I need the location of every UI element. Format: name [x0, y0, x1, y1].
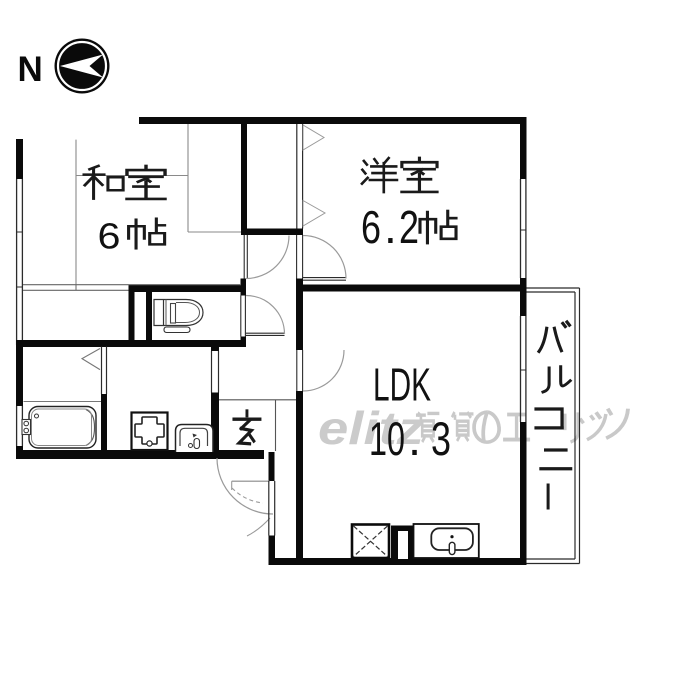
svg-text:6: 6 [98, 215, 121, 256]
svg-text:10: 10 [369, 412, 405, 465]
svg-text:LDK: LDK [373, 358, 431, 410]
svg-text:2: 2 [399, 201, 419, 253]
svg-text:3: 3 [431, 412, 451, 465]
svg-text:.: . [408, 412, 421, 465]
svg-text:N: N [18, 50, 43, 89]
svg-text:.: . [384, 201, 397, 253]
svg-text:6: 6 [361, 201, 381, 253]
